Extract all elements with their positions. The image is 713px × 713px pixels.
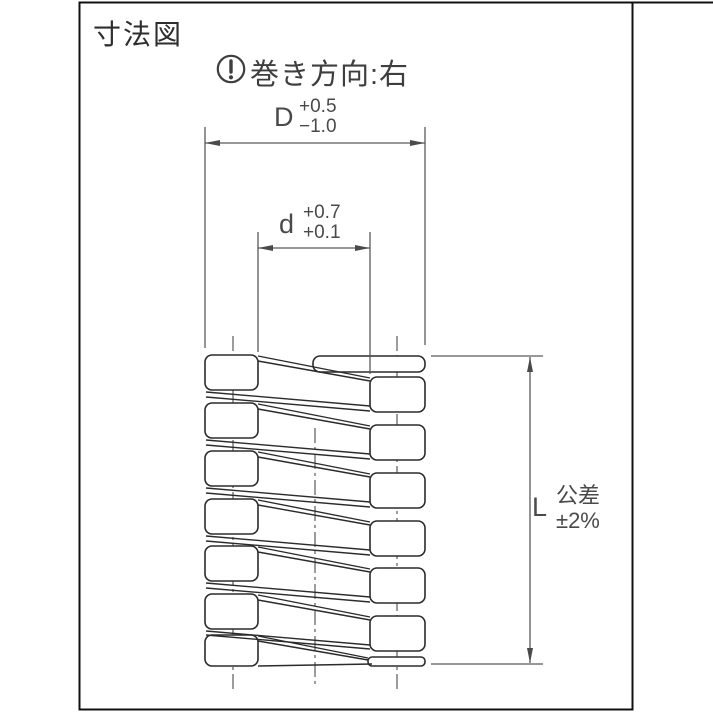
dim-L-tolerance-value: ±2% — [556, 508, 600, 533]
dim-d-tolerance-upper: +0.7 — [303, 203, 341, 223]
dim-L-tolerance-label: 公差 — [556, 483, 600, 508]
dim-L-tolerance: 公差 ±2% — [556, 483, 600, 533]
spring-left-coils — [205, 355, 258, 666]
dim-d-label: d — [279, 209, 294, 240]
dim-d-lines — [258, 232, 370, 374]
dim-L-label: L — [532, 492, 547, 523]
drawing-canvas — [0, 0, 713, 713]
exclamation-circle-icon — [218, 56, 244, 82]
dim-d-tolerance-lower: +0.1 — [303, 223, 341, 243]
dim-D-tolerance-lower: −1.0 — [299, 117, 337, 137]
dim-D-tolerance: +0.5 −1.0 — [299, 97, 337, 137]
dim-D-label: D — [274, 102, 294, 133]
dim-d-tolerance: +0.7 +0.1 — [303, 203, 341, 243]
dim-L-lines — [431, 356, 543, 664]
dim-D-tolerance-upper: +0.5 — [299, 97, 337, 117]
dimension-drawing-page: 寸法図 巻き方向:右 D +0.5 −1.0 d +0.7 +0.1 L 公差 … — [0, 0, 713, 713]
drawing-title: 寸法図 — [93, 13, 183, 53]
winding-direction-note: 巻き方向:右 — [250, 51, 409, 93]
